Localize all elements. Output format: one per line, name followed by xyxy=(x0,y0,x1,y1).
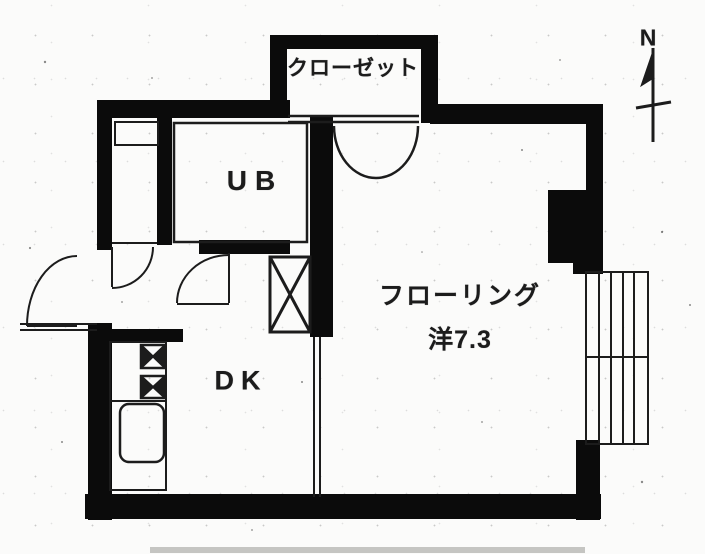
room-size-label: 洋7.3 xyxy=(428,320,492,356)
washroom-door-arc xyxy=(112,247,153,288)
sink-basin xyxy=(120,404,164,462)
dk-door xyxy=(177,253,229,304)
wall-left-lower xyxy=(88,323,112,520)
dk-partition xyxy=(314,337,320,497)
unit-bath-label: UB xyxy=(227,165,283,197)
north-arrow-icon xyxy=(636,48,671,142)
kitchen-counter xyxy=(110,342,166,490)
closet-label: クローゼット xyxy=(287,52,419,82)
shelf-box xyxy=(115,122,158,145)
floor-plan: クローゼット UB DK フローリング 洋7.3 N xyxy=(0,0,705,554)
north-label: N xyxy=(640,25,657,52)
dk-door-arc xyxy=(177,255,229,303)
wall-top-left xyxy=(97,100,290,118)
washroom-door xyxy=(112,247,153,288)
stove-burner-icon xyxy=(141,345,165,398)
wall-bottom xyxy=(85,494,601,519)
storage-strip xyxy=(112,122,158,243)
wall-left-upper xyxy=(97,100,112,250)
wall-right-bulge xyxy=(548,190,586,263)
scan-edge-smudge xyxy=(150,547,585,553)
kitchen-sink-icon xyxy=(120,404,164,462)
wall-center-vertical xyxy=(310,117,333,337)
entrance-door-arc xyxy=(27,256,77,326)
entrance-door xyxy=(20,256,97,330)
flooring-label: フローリング xyxy=(379,276,541,312)
ps-duct-icon xyxy=(270,257,310,332)
closet-door-arc-left xyxy=(334,126,376,178)
wall-strip-right xyxy=(157,117,172,245)
counter-outline xyxy=(110,342,166,490)
wall-top-right xyxy=(430,104,603,124)
closet-door-arc-right xyxy=(376,126,418,178)
balcony xyxy=(586,272,648,444)
dining-kitchen-label: DK xyxy=(215,366,268,397)
wall-closet-top xyxy=(270,35,438,49)
floor-plan-drawing xyxy=(0,0,705,554)
wall-right-upper xyxy=(586,104,603,274)
wall-kitchen-top xyxy=(97,329,183,342)
